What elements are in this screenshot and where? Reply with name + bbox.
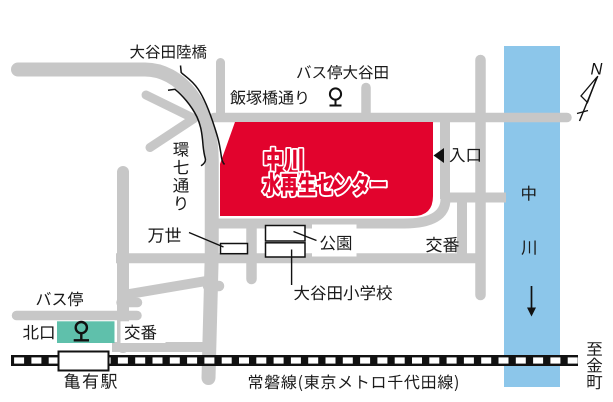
svg-text:N: N <box>591 61 603 79</box>
